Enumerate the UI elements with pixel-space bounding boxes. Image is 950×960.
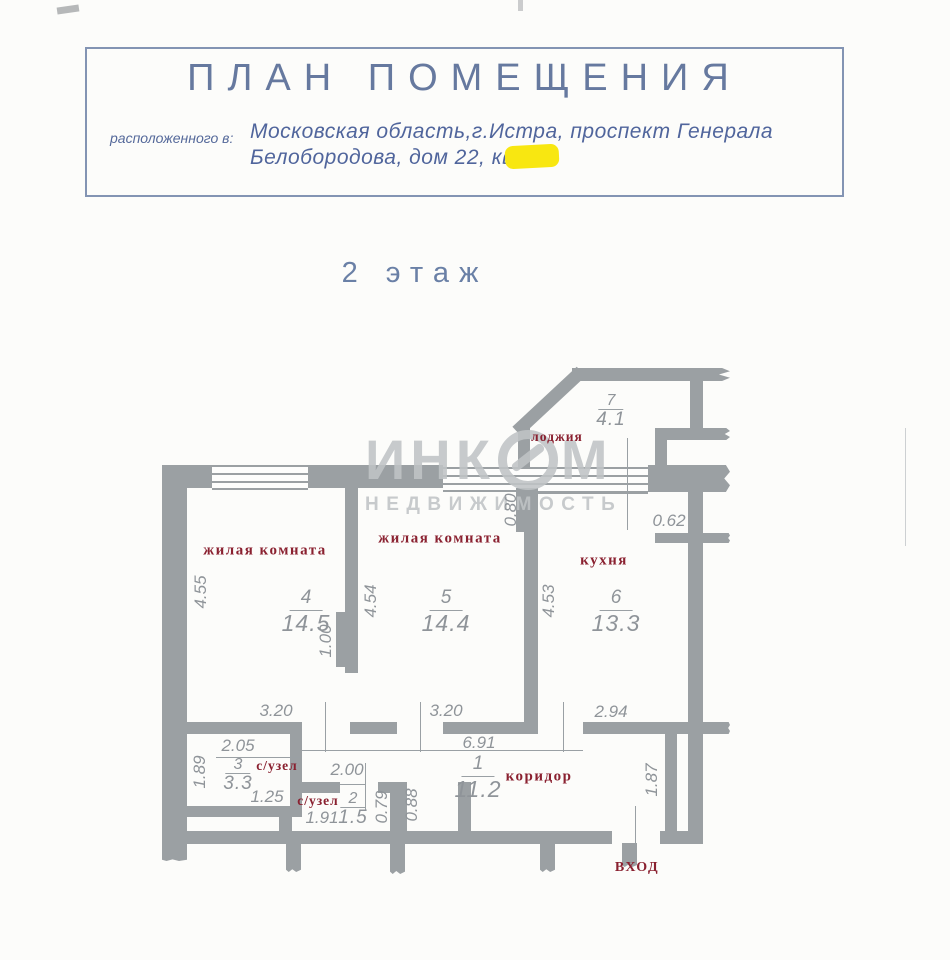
watermark-brand-left: ИНК — [365, 430, 495, 490]
dimension-label: 1.89 — [190, 755, 210, 788]
room-number: 3 — [226, 756, 251, 774]
room-area: 14.5 — [282, 611, 331, 636]
dim-line-kitchen-door — [563, 702, 564, 752]
wall-loggia-notch-v — [655, 428, 667, 468]
dimension-label: 0.79 — [372, 790, 392, 823]
room-fraction-wc2: 2 1.5 — [338, 790, 367, 829]
dimension-label: 3.20 — [429, 701, 462, 721]
wall-left-foot — [162, 845, 187, 861]
wall-loggia-top — [572, 368, 730, 381]
wall-loggia-right — [690, 381, 703, 432]
dimension-label: 1.87 — [642, 763, 662, 796]
dim-line-entrance — [635, 806, 636, 862]
dim-line-691 — [302, 750, 583, 751]
wall-corridor-ext — [703, 722, 730, 734]
room-area: 1.5 — [338, 808, 367, 829]
window-room4 — [212, 465, 308, 490]
scanned-floor-plan-page: ПЛАН ПОМЕЩЕНИЯ расположенного в: Московс… — [0, 0, 950, 960]
door-leaf-room4-room5 — [336, 612, 345, 667]
watermark-subtext: НЕДВИЖИМОСТЬ — [365, 494, 622, 516]
room-number: 1 — [462, 754, 495, 777]
wall-left-exterior — [162, 465, 187, 847]
room-fraction-living2: 5 14.4 — [422, 588, 471, 635]
wall-stub-below-2 — [390, 844, 405, 874]
dim-line-loggia — [627, 438, 628, 530]
room-label-loggia: лоджия — [531, 429, 583, 445]
wall-room4-room5-divider — [345, 488, 358, 673]
dimension-label: 0.62 — [652, 511, 685, 531]
dim-line-door5 — [420, 702, 421, 752]
dimension-label: 3.20 — [259, 701, 292, 721]
wall-top-a — [162, 465, 214, 488]
room-fraction-kitchen: 6 13.3 — [592, 588, 641, 635]
room-area: 13.3 — [592, 611, 641, 636]
dimension-label: 2.05 — [221, 736, 254, 756]
wall-stub-kitchen-left — [655, 533, 688, 543]
wall-corridor-a — [186, 722, 300, 734]
room-fraction-corridor: 1 11.2 — [454, 754, 501, 801]
room-fraction-wc3: 3 3.3 — [223, 756, 252, 795]
wall-stub-kitchen-right — [703, 533, 730, 543]
dimension-label: 1.25 — [250, 787, 283, 807]
dimension-label: 1.91 — [305, 808, 338, 828]
wall-bottom-a — [162, 831, 612, 844]
room-fraction-living1: 4 14.5 — [282, 588, 331, 635]
room-label-living1: жилая комната — [203, 543, 326, 560]
wall-stub-below-3 — [540, 844, 555, 872]
agency-watermark: ИНК М НЕДВИЖИМОСТЬ — [365, 430, 622, 516]
room-area: 4.1 — [596, 410, 625, 431]
scan-speck — [518, 0, 523, 11]
dimension-label: 4.55 — [191, 575, 211, 608]
wall-bottom-b — [660, 831, 703, 844]
wall-stub-below-1 — [286, 844, 301, 872]
dimension-label: 4.53 — [539, 584, 559, 617]
dimension-label: 0.80 — [501, 493, 521, 526]
room-label-corridor: коридор — [506, 769, 573, 786]
wall-room5-kitchen-divider — [524, 488, 538, 728]
room-fraction-loggia: 7 4.1 — [596, 392, 625, 431]
entrance-label: вход — [615, 860, 659, 876]
wall-corridor-right — [665, 732, 677, 832]
wall-kitchen-right — [688, 492, 703, 843]
wall-corridor-b — [350, 722, 397, 734]
room-area: 3.3 — [223, 774, 252, 795]
room-area: 11.2 — [454, 777, 501, 802]
wall-top-right — [648, 465, 730, 492]
room-label-wc2: с/узел — [297, 793, 338, 809]
room-number: 2 — [341, 790, 366, 808]
dimension-label: 2.94 — [594, 702, 627, 722]
room-area: 14.4 — [422, 611, 471, 636]
dim-line-200-h — [317, 784, 365, 785]
room-label-living2: жилая комната — [378, 531, 501, 548]
room-number: 4 — [290, 588, 323, 611]
room-label-wc3: с/узел — [256, 758, 297, 774]
room-number: 7 — [599, 392, 624, 410]
scan-edge-line — [905, 428, 906, 546]
room-number: 6 — [600, 588, 633, 611]
dimension-label: 6.91 — [462, 733, 495, 753]
dimension-label: 2.00 — [330, 760, 363, 780]
dimension-label: 4.54 — [361, 584, 381, 617]
room-number: 5 — [430, 588, 463, 611]
dimension-label: 0.88 — [402, 788, 422, 821]
dim-line-door4 — [325, 702, 326, 752]
room-label-kitchen: кухня — [580, 553, 628, 570]
watermark-brand: ИНК М — [365, 430, 622, 490]
